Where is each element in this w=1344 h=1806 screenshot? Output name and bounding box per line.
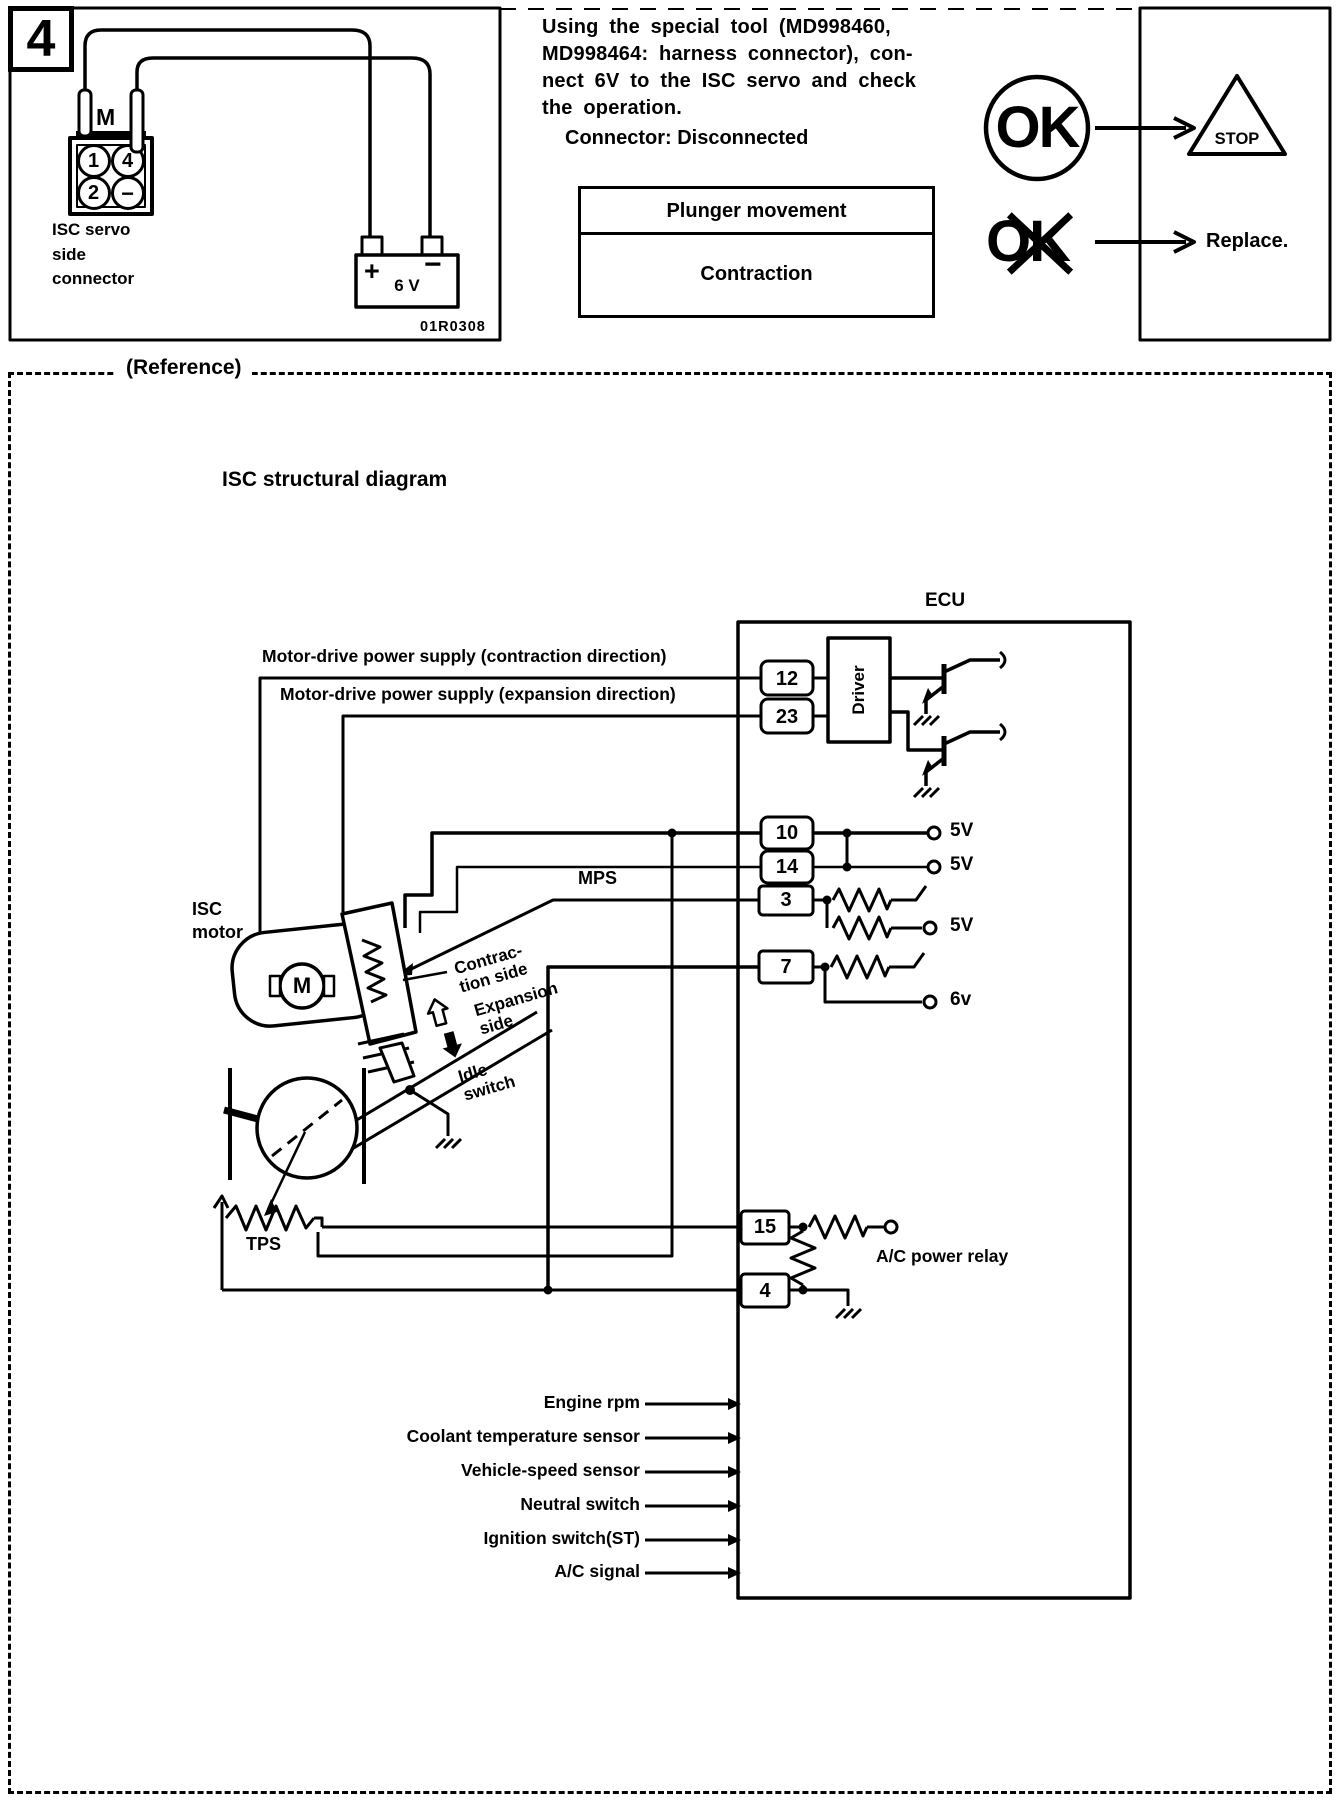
pin-3: 3 — [759, 889, 813, 912]
connector-caption: ISC servo side connector — [52, 218, 134, 292]
supply-contraction-label: Motor-drive power supply (contraction di… — [262, 646, 666, 667]
plunger-table: Plunger movement Contraction — [578, 186, 935, 318]
test-probe — [131, 90, 143, 152]
table-value: Contraction — [581, 235, 932, 315]
pin-14: 14 — [761, 856, 813, 879]
diagram-title: ISC structural diagram — [222, 468, 447, 492]
input-ac-signal: A/C signal — [230, 1561, 640, 1582]
mps-label: MPS — [578, 868, 617, 889]
pin-4: 4 — [741, 1280, 789, 1303]
jumper-wire — [137, 58, 430, 237]
replace-label: Replace. — [1206, 230, 1288, 253]
terminal-5v-label: 5V — [950, 820, 973, 842]
stop-label: STOP — [1189, 130, 1285, 149]
figure-code: 01R0308 — [420, 319, 486, 335]
pin-1-label: 1 — [78, 146, 109, 177]
input-neutral-switch: Neutral switch — [230, 1494, 640, 1515]
reference-box — [8, 372, 1332, 1794]
driver-label: Driver — [847, 650, 871, 730]
step-number-badge: 4 — [8, 6, 74, 72]
test-probe — [79, 90, 91, 136]
ecu-label: ECU — [925, 590, 965, 612]
pin-minus-label: − — [112, 178, 143, 209]
connector-state: Connector: Disconnected — [565, 127, 808, 150]
battery-voltage-label: 6 V — [356, 276, 458, 296]
pin-7: 7 — [759, 956, 813, 979]
terminal-5v-label: 5V — [950, 915, 973, 937]
input-engine-rpm: Engine rpm — [230, 1392, 640, 1413]
manual-page: 4 M 1 4 2 − ISC servo side connector + −… — [0, 0, 1344, 1806]
tps-label: TPS — [246, 1234, 281, 1255]
motor-mark-label: M — [96, 104, 115, 131]
terminal-6v-label: 6v — [950, 989, 971, 1011]
ok-symbol: OK — [986, 98, 1088, 158]
ng-symbol: OK — [984, 212, 1092, 274]
pin-15: 15 — [741, 1216, 789, 1239]
ac-power-relay-label: A/C power relay — [876, 1246, 1008, 1267]
pin-12: 12 — [761, 668, 813, 691]
supply-expansion-label: Motor-drive power supply (expansion dire… — [280, 684, 676, 705]
table-header: Plunger movement — [581, 189, 932, 235]
instruction-text: Using the special tool (MD998460, MD9984… — [542, 14, 1022, 122]
reference-caption: (Reference) — [116, 356, 252, 380]
pin-2-label: 2 — [78, 178, 109, 209]
terminal-5v-label: 5V — [950, 854, 973, 876]
input-ignition-switch: Ignition switch(ST) — [230, 1528, 640, 1549]
pin-10: 10 — [761, 822, 813, 845]
isc-motor-label: ISC motor — [192, 898, 243, 943]
pin-23: 23 — [761, 706, 813, 729]
pin-4-label: 4 — [112, 146, 143, 177]
input-vehicle-speed: Vehicle-speed sensor — [230, 1460, 640, 1481]
motor-m-label: M — [280, 964, 324, 1008]
input-coolant-temp: Coolant temperature sensor — [230, 1426, 640, 1447]
